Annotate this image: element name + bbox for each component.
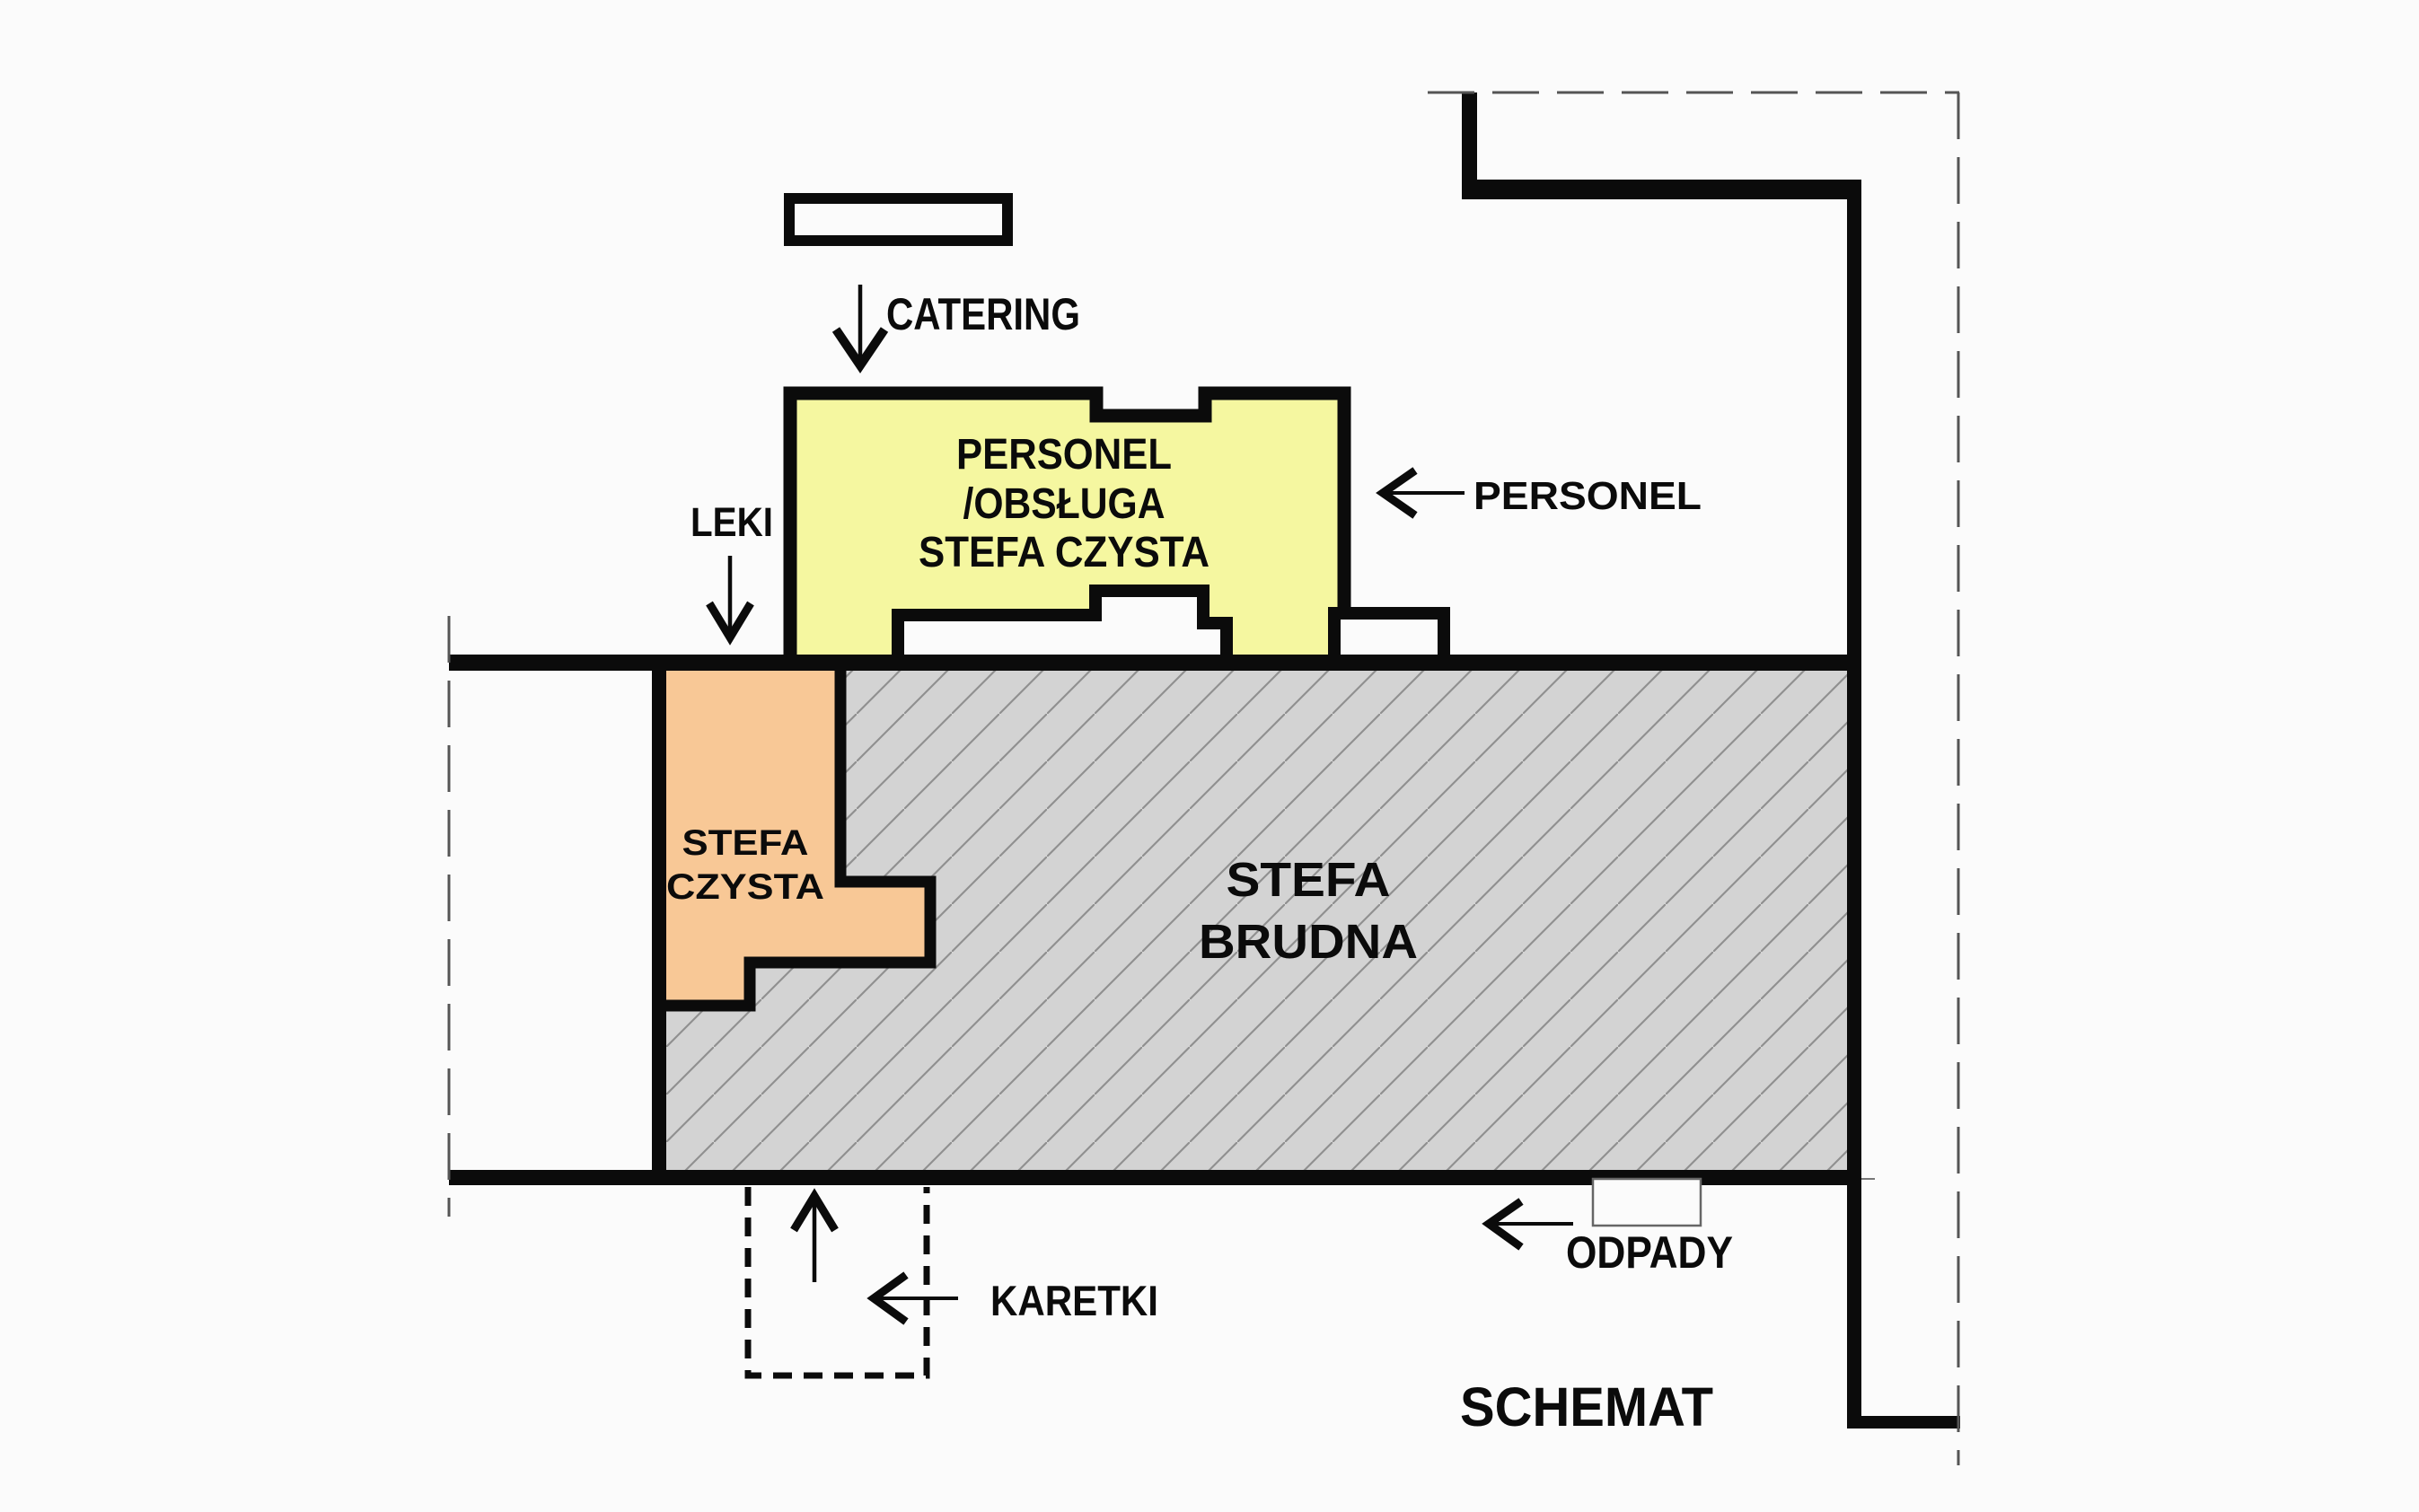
svg-text:SCHEMAT: SCHEMAT	[1460, 1376, 1713, 1437]
svg-text:ODPADY: ODPADY	[1566, 1227, 1733, 1278]
svg-text:KARETKI: KARETKI	[990, 1277, 1158, 1324]
svg-text:BRUDNA: BRUDNA	[1199, 915, 1418, 969]
svg-text:STEFA: STEFA	[1227, 853, 1391, 907]
svg-text:STEFA CZYSTA: STEFA CZYSTA	[919, 529, 1209, 576]
svg-text:PERSONEL: PERSONEL	[1473, 474, 1702, 518]
svg-text:PERSONEL: PERSONEL	[956, 431, 1172, 479]
svg-text:CZYSTA: CZYSTA	[666, 867, 824, 907]
svg-text:/OBSŁUGA: /OBSŁUGA	[963, 480, 1166, 528]
svg-text:STEFA: STEFA	[682, 823, 809, 863]
svg-text:CATERING: CATERING	[886, 289, 1080, 339]
svg-text:LEKI: LEKI	[691, 499, 773, 545]
